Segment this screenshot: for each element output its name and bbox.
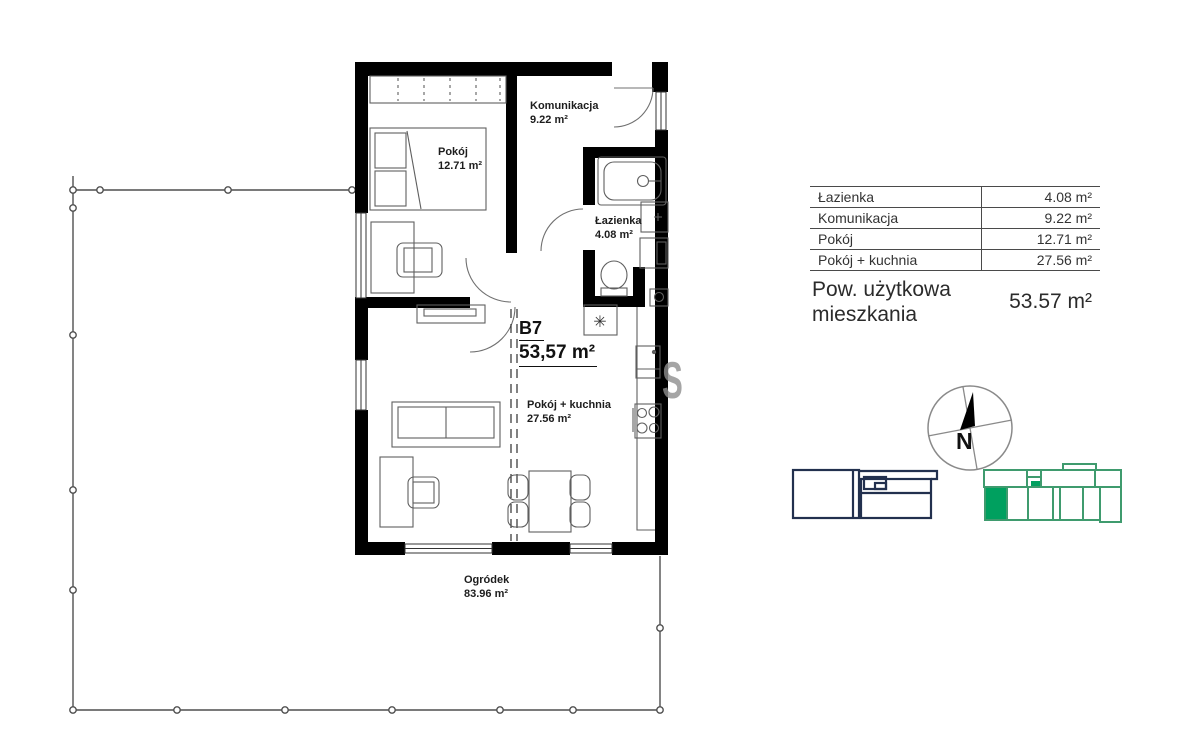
usable-area-summary: Pow. użytkowa mieszkania 53.57 m² bbox=[810, 277, 1100, 327]
bedroom-label: Pokój 12.71 m² bbox=[438, 146, 482, 173]
row-label: Łazienka bbox=[810, 187, 982, 207]
row-value: 27.56 m² bbox=[982, 250, 1100, 270]
dining-chairs bbox=[508, 475, 590, 527]
floorplan-page: ✳ S N bbox=[0, 0, 1200, 752]
row-value: 4.08 m² bbox=[982, 187, 1100, 207]
dashed-partition bbox=[511, 309, 517, 541]
table-row: Pokój 12.71 m² bbox=[810, 228, 1100, 249]
window-living-bottom bbox=[405, 544, 492, 553]
bathroom-label: Łazienka 4.08 m² bbox=[595, 215, 641, 242]
unit-label: B7 53,57 m² bbox=[519, 318, 597, 367]
window-bedroom-left bbox=[356, 213, 366, 298]
table-row: Komunikacja 9.22 m² bbox=[810, 207, 1100, 228]
unit-area: 53,57 m² bbox=[519, 342, 597, 367]
living-door-arc bbox=[470, 307, 515, 352]
row-value: 12.71 m² bbox=[982, 229, 1100, 249]
window-entry-side bbox=[656, 92, 666, 130]
room-area: 83.96 m² bbox=[464, 588, 509, 602]
room-name: Pokój + kuchnia bbox=[527, 399, 611, 413]
window-living-left bbox=[356, 360, 366, 410]
wardrobe bbox=[370, 76, 506, 103]
building-elevation-outline bbox=[793, 470, 937, 518]
unit-code: B7 bbox=[519, 318, 544, 341]
room-area: 12.71 m² bbox=[438, 160, 482, 174]
room-name: Ogródek bbox=[464, 574, 509, 588]
living-chair bbox=[408, 477, 439, 508]
room-area: 27.56 m² bbox=[527, 413, 611, 427]
dining-table bbox=[529, 471, 571, 532]
row-label: Pokój + kuchnia bbox=[810, 250, 982, 270]
table-row: Łazienka 4.08 m² bbox=[810, 187, 1100, 207]
highlighted-unit bbox=[985, 487, 1007, 520]
table-row: Pokój + kuchnia 27.56 m² bbox=[810, 249, 1100, 270]
compass-north-label: N bbox=[956, 428, 973, 454]
compass: N bbox=[928, 386, 1012, 470]
room-name: Pokój bbox=[438, 146, 482, 160]
toilet-icon bbox=[601, 261, 627, 296]
bathroom-door-arc bbox=[541, 209, 583, 251]
room-area: 9.22 m² bbox=[530, 114, 598, 128]
entrance-door bbox=[614, 88, 653, 127]
hall-label: Komunikacja 9.22 m² bbox=[530, 100, 598, 127]
bedroom-desk bbox=[371, 222, 414, 293]
summary-label: Pow. użytkowa mieszkania bbox=[810, 277, 984, 327]
room-name: Łazienka bbox=[595, 215, 641, 229]
bedroom-door-arc bbox=[466, 258, 511, 302]
room-area: 4.08 m² bbox=[595, 229, 641, 243]
area-table: Łazienka 4.08 m² Komunikacja 9.22 m² Pok… bbox=[810, 186, 1100, 327]
kitchen-counter bbox=[637, 307, 655, 530]
bedroom-chair bbox=[397, 243, 442, 277]
row-label: Pokój bbox=[810, 229, 982, 249]
room-name: Komunikacja bbox=[530, 100, 598, 114]
floorplan-drawing: ✳ S N bbox=[0, 0, 1200, 752]
living-label: Pokój + kuchnia 27.56 m² bbox=[527, 399, 611, 426]
floor-location-outline bbox=[984, 464, 1121, 522]
garden-label: Ogródek 83.96 m² bbox=[464, 574, 509, 601]
compass-needle-icon bbox=[960, 392, 975, 430]
window-kitchen-bottom bbox=[570, 544, 612, 553]
sofa bbox=[392, 402, 500, 447]
watermark-letter: S bbox=[662, 352, 683, 410]
area-table-rows: Łazienka 4.08 m² Komunikacja 9.22 m² Pok… bbox=[810, 186, 1100, 271]
row-label: Komunikacja bbox=[810, 208, 982, 228]
summary-value: 53.57 m² bbox=[984, 290, 1100, 314]
row-value: 9.22 m² bbox=[982, 208, 1100, 228]
